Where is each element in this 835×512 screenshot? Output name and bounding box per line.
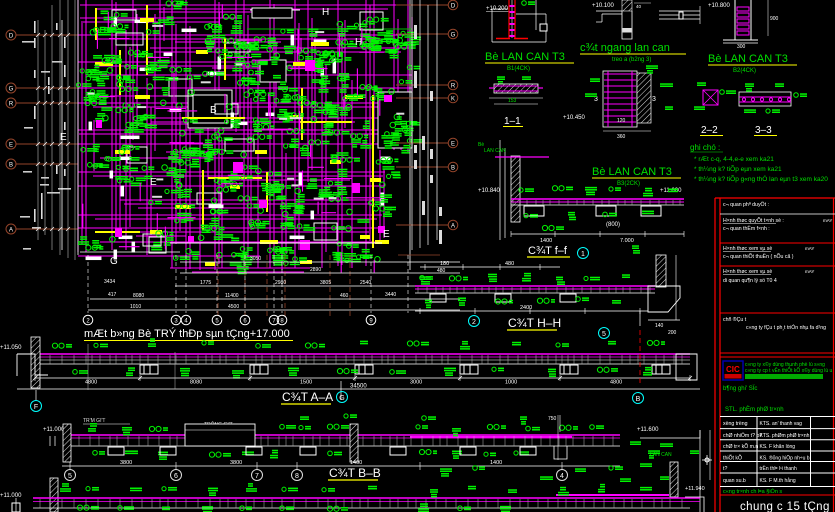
svg-text:5: 5 (68, 473, 72, 480)
svg-text:ghi chó :: ghi chó : (690, 143, 720, 152)
svg-text:A: A (451, 224, 455, 230)
svg-text:G: G (110, 256, 118, 267)
svg-text:Bè LAN CAN T3: Bè LAN CAN T3 (485, 51, 565, 63)
svg-text:153: 153 (508, 98, 517, 104)
svg-text:thiÕt kÕ: thiÕt kÕ (723, 455, 742, 462)
svg-text:900: 900 (770, 16, 779, 22)
svg-text:c«ng tr×nh ch Þa §iÓn s: c«ng tr×nh ch Þa §iÓn s (723, 488, 782, 495)
svg-text:8: 8 (295, 473, 299, 480)
svg-text:34500: 34500 (350, 384, 367, 390)
svg-text:B: B (451, 166, 455, 172)
svg-text:480: 480 (505, 261, 514, 267)
svg-text:750: 750 (548, 416, 557, 422)
svg-text:1000: 1000 (505, 380, 517, 386)
svg-text:LAN CAN: LAN CAN (650, 452, 672, 458)
svg-text:120: 120 (617, 118, 626, 124)
svg-text:treo a (b2ng 3): treo a (b2ng 3) (612, 57, 651, 63)
svg-text:+10.840: +10.840 (478, 188, 501, 194)
svg-text:chñ ®Çu t­: chñ ®Çu t­ (723, 316, 747, 323)
svg-text:1: 1 (581, 251, 585, 258)
svg-text:40: 40 (636, 4, 642, 9)
svg-text:quan su.b: quan su.b (723, 478, 746, 484)
svg-text:C¾T H–H: C¾T H–H (508, 316, 561, 330)
svg-text:3050: 3050 (250, 256, 261, 262)
svg-text:1400: 1400 (490, 460, 502, 466)
svg-text:3–3: 3–3 (755, 125, 772, 136)
svg-text:360: 360 (617, 134, 626, 140)
svg-text:H: H (355, 37, 362, 48)
svg-text:+11.940: +11.940 (685, 486, 705, 492)
svg-text:1010: 1010 (130, 304, 141, 310)
svg-text:E: E (383, 229, 390, 240)
svg-text:7: 7 (255, 473, 259, 480)
svg-text:4800: 4800 (85, 380, 97, 386)
svg-text:C¾T A–A: C¾T A–A (282, 390, 333, 404)
svg-text:c¬ quan phª duyÖt :: c¬ quan phª duyÖt : (723, 201, 769, 208)
svg-text:4: 4 (560, 473, 564, 480)
svg-text:+11.000: +11.000 (0, 493, 22, 499)
svg-text:c¬ quan thiÕt thuËn ( nÕu cã ): c¬ quan thiÕt thuËn ( nÕu cã ) (723, 253, 794, 260)
svg-text:3: 3 (652, 96, 656, 103)
svg-text:LAN CAN: LAN CAN (484, 148, 506, 154)
svg-text:4500: 4500 (228, 304, 239, 310)
svg-text:H: H (322, 7, 329, 18)
svg-text:+11.600: +11.600 (637, 427, 659, 433)
svg-text:t?: t? (723, 466, 727, 472)
svg-text:E: E (451, 142, 455, 148)
svg-text:Bè LAN CAN T3: Bè LAN CAN T3 (708, 53, 788, 65)
svg-text:c¬ quan thÈm f×nh :: c¬ quan thÈm f×nh : (723, 225, 770, 232)
svg-text:mÆt b»ng Bè TRÝ thÐp sµn tÇng+: mÆt b»ng Bè TRÝ thÐp sµn tÇng+17.000 (84, 327, 290, 340)
svg-text:1775: 1775 (200, 280, 211, 286)
svg-text:H×nh thøc xem vµ sè: H×nh thøc xem vµ sè (723, 246, 772, 252)
svg-text:CIC: CIC (726, 365, 740, 374)
svg-text:+11.050: +11.050 (0, 345, 22, 351)
svg-text:mAY: mAY (805, 246, 814, 251)
svg-text:2–2: 2–2 (701, 125, 718, 136)
svg-text:E: E (9, 143, 13, 149)
svg-text:G: G (9, 87, 14, 93)
svg-text:E: E (150, 177, 157, 188)
svg-text:B: B (636, 396, 641, 403)
svg-text:x­ëng tr­ëng: x­ëng tr­ëng (723, 421, 748, 427)
svg-text:+10.800: +10.800 (708, 3, 731, 9)
svg-text:H×nh thøc quyÕt t×nh sè :: H×nh thøc quyÕt t×nh sè : (723, 217, 784, 224)
svg-text:chung c­ 15 tÇng: chung c­ 15 tÇng (740, 501, 830, 512)
svg-text:+11.000: +11.000 (43, 427, 65, 433)
svg-text:G: G (451, 33, 456, 39)
svg-text:180: 180 (440, 261, 449, 267)
svg-text:C¾T f–f: C¾T f–f (528, 245, 568, 257)
svg-text:D: D (9, 34, 14, 40)
svg-text:140: 140 (655, 323, 664, 329)
svg-text:c«ng ty x©y dùng thµnh phè lù: c«ng ty x©y dùng thµnh phè lù s«ng (745, 361, 825, 368)
svg-text:B1(4CK): B1(4CK) (507, 66, 530, 72)
svg-text:2: 2 (472, 319, 476, 326)
svg-text:(800): (800) (606, 222, 620, 228)
svg-text:7.000: 7.000 (620, 238, 634, 244)
svg-text:c«ng ty cp t­ vÊn thiÕt kÕ x©y: c«ng ty cp t­ vÊn thiÕt kÕ x©y dùng lù u (745, 366, 833, 374)
svg-text:3440: 3440 (385, 292, 396, 298)
svg-text:mAY: mAY (805, 269, 814, 274)
svg-text:3434: 3434 (104, 279, 115, 285)
svg-text:6: 6 (174, 473, 178, 480)
svg-text:KTS. an' thanh vag: KTS. an' thanh vag (760, 421, 803, 427)
svg-text:di quan qu¶n lý sö T0 4: di quan qu¶n lý sö T0 4 (723, 278, 777, 284)
svg-text:KS. ®õng hiÖp nh÷u b: KS. ®õng hiÖp nh÷u b (760, 455, 810, 462)
svg-text:E: E (60, 132, 67, 143)
svg-text:KTS. phØm phØ tr×nh: KTS. phØm phØ tr×nh (760, 433, 810, 439)
svg-text:G: G (339, 395, 344, 402)
svg-text:trËn thÞ l¹i thanh: trËn thÞ l¹i thanh (760, 465, 797, 472)
svg-text:c¾t ngang lan can: c¾t ngang lan can (580, 42, 670, 54)
svg-text:C¾T B–B: C¾T B–B (329, 466, 381, 480)
svg-text:3: 3 (594, 96, 598, 103)
svg-text:b¶ng ghi' SÏc: b¶ng ghi' SÏc (723, 385, 757, 392)
svg-text:3800: 3800 (230, 460, 242, 466)
svg-text:Bè LAN CAN T3: Bè LAN CAN T3 (592, 166, 672, 178)
svg-text:B: B (210, 105, 217, 116)
svg-text:200: 200 (668, 330, 677, 336)
svg-text:3800: 3800 (120, 460, 132, 466)
svg-text:R: R (9, 102, 14, 108)
svg-text:K: K (451, 97, 455, 103)
svg-text:R: R (451, 84, 456, 90)
svg-text:c«ng ty fÇu t­ ph¸t triÓn nhµ: c«ng ty fÇu t­ ph¸t triÓn nhµ fa d¹ng (746, 324, 826, 331)
svg-text:1–1: 1–1 (504, 116, 521, 127)
svg-text:KS. F khãn lòng: KS. F khãn lòng (760, 444, 796, 450)
svg-text:B3(2CK): B3(2CK) (617, 181, 640, 187)
svg-text:2890: 2890 (310, 267, 321, 273)
svg-text:chØ nhiÖm t? b?: chØ nhiÖm t? b? (723, 432, 762, 439)
svg-text:B: B (9, 163, 13, 169)
svg-text:+10.100: +10.100 (592, 3, 615, 9)
svg-text:2980: 2980 (275, 280, 286, 286)
svg-text:8080: 8080 (190, 380, 202, 386)
svg-text:B2(4CK): B2(4CK) (733, 68, 756, 74)
svg-text:+10.450: +10.450 (563, 115, 586, 121)
svg-text:* rÆt c-q, 4-4,e-e xem ka21: * rÆt c-q, 4-4,e-e xem ka21 (694, 156, 774, 163)
svg-text:2540: 2540 (360, 280, 371, 286)
svg-text:11400: 11400 (225, 293, 239, 299)
svg-text:417: 417 (108, 292, 117, 298)
svg-text:D: D (451, 4, 456, 10)
svg-text:460: 460 (340, 293, 349, 299)
svg-text:A: A (9, 228, 13, 234)
svg-text:5: 5 (602, 331, 606, 338)
svg-text:1500: 1500 (300, 380, 312, 386)
svg-text:1400: 1400 (540, 238, 552, 244)
svg-text:mAY: mAY (823, 218, 832, 223)
svg-text:3805: 3805 (320, 280, 331, 286)
svg-text:8080: 8080 (133, 293, 144, 299)
svg-text:* th¼ng k? tiÕp eµn xem ka21: * th¼ng k? tiÕp eµn xem ka21 (694, 164, 782, 173)
svg-text:KS. F M.th hång: KS. F M.th hång (760, 477, 796, 484)
svg-text:300: 300 (737, 44, 746, 50)
svg-text:4800: 4800 (610, 380, 622, 386)
svg-text:chØ tr× kÕ m.n: chØ tr× kÕ m.n (723, 443, 758, 450)
svg-text:STL. phÈm phØ tr×nh: STL. phÈm phØ tr×nh (725, 406, 784, 413)
svg-text:* th¼ng k? tiÕp g«ng thÓ lan e: * th¼ng k? tiÕp g«ng thÓ lan eµn t3 xem … (694, 174, 828, 183)
svg-text:2400: 2400 (520, 305, 532, 311)
svg-text:F: F (34, 404, 38, 411)
svg-text:3000: 3000 (410, 380, 422, 386)
svg-text:H×nh thøc xem vµ sè: H×nh thøc xem vµ sè (723, 269, 772, 275)
